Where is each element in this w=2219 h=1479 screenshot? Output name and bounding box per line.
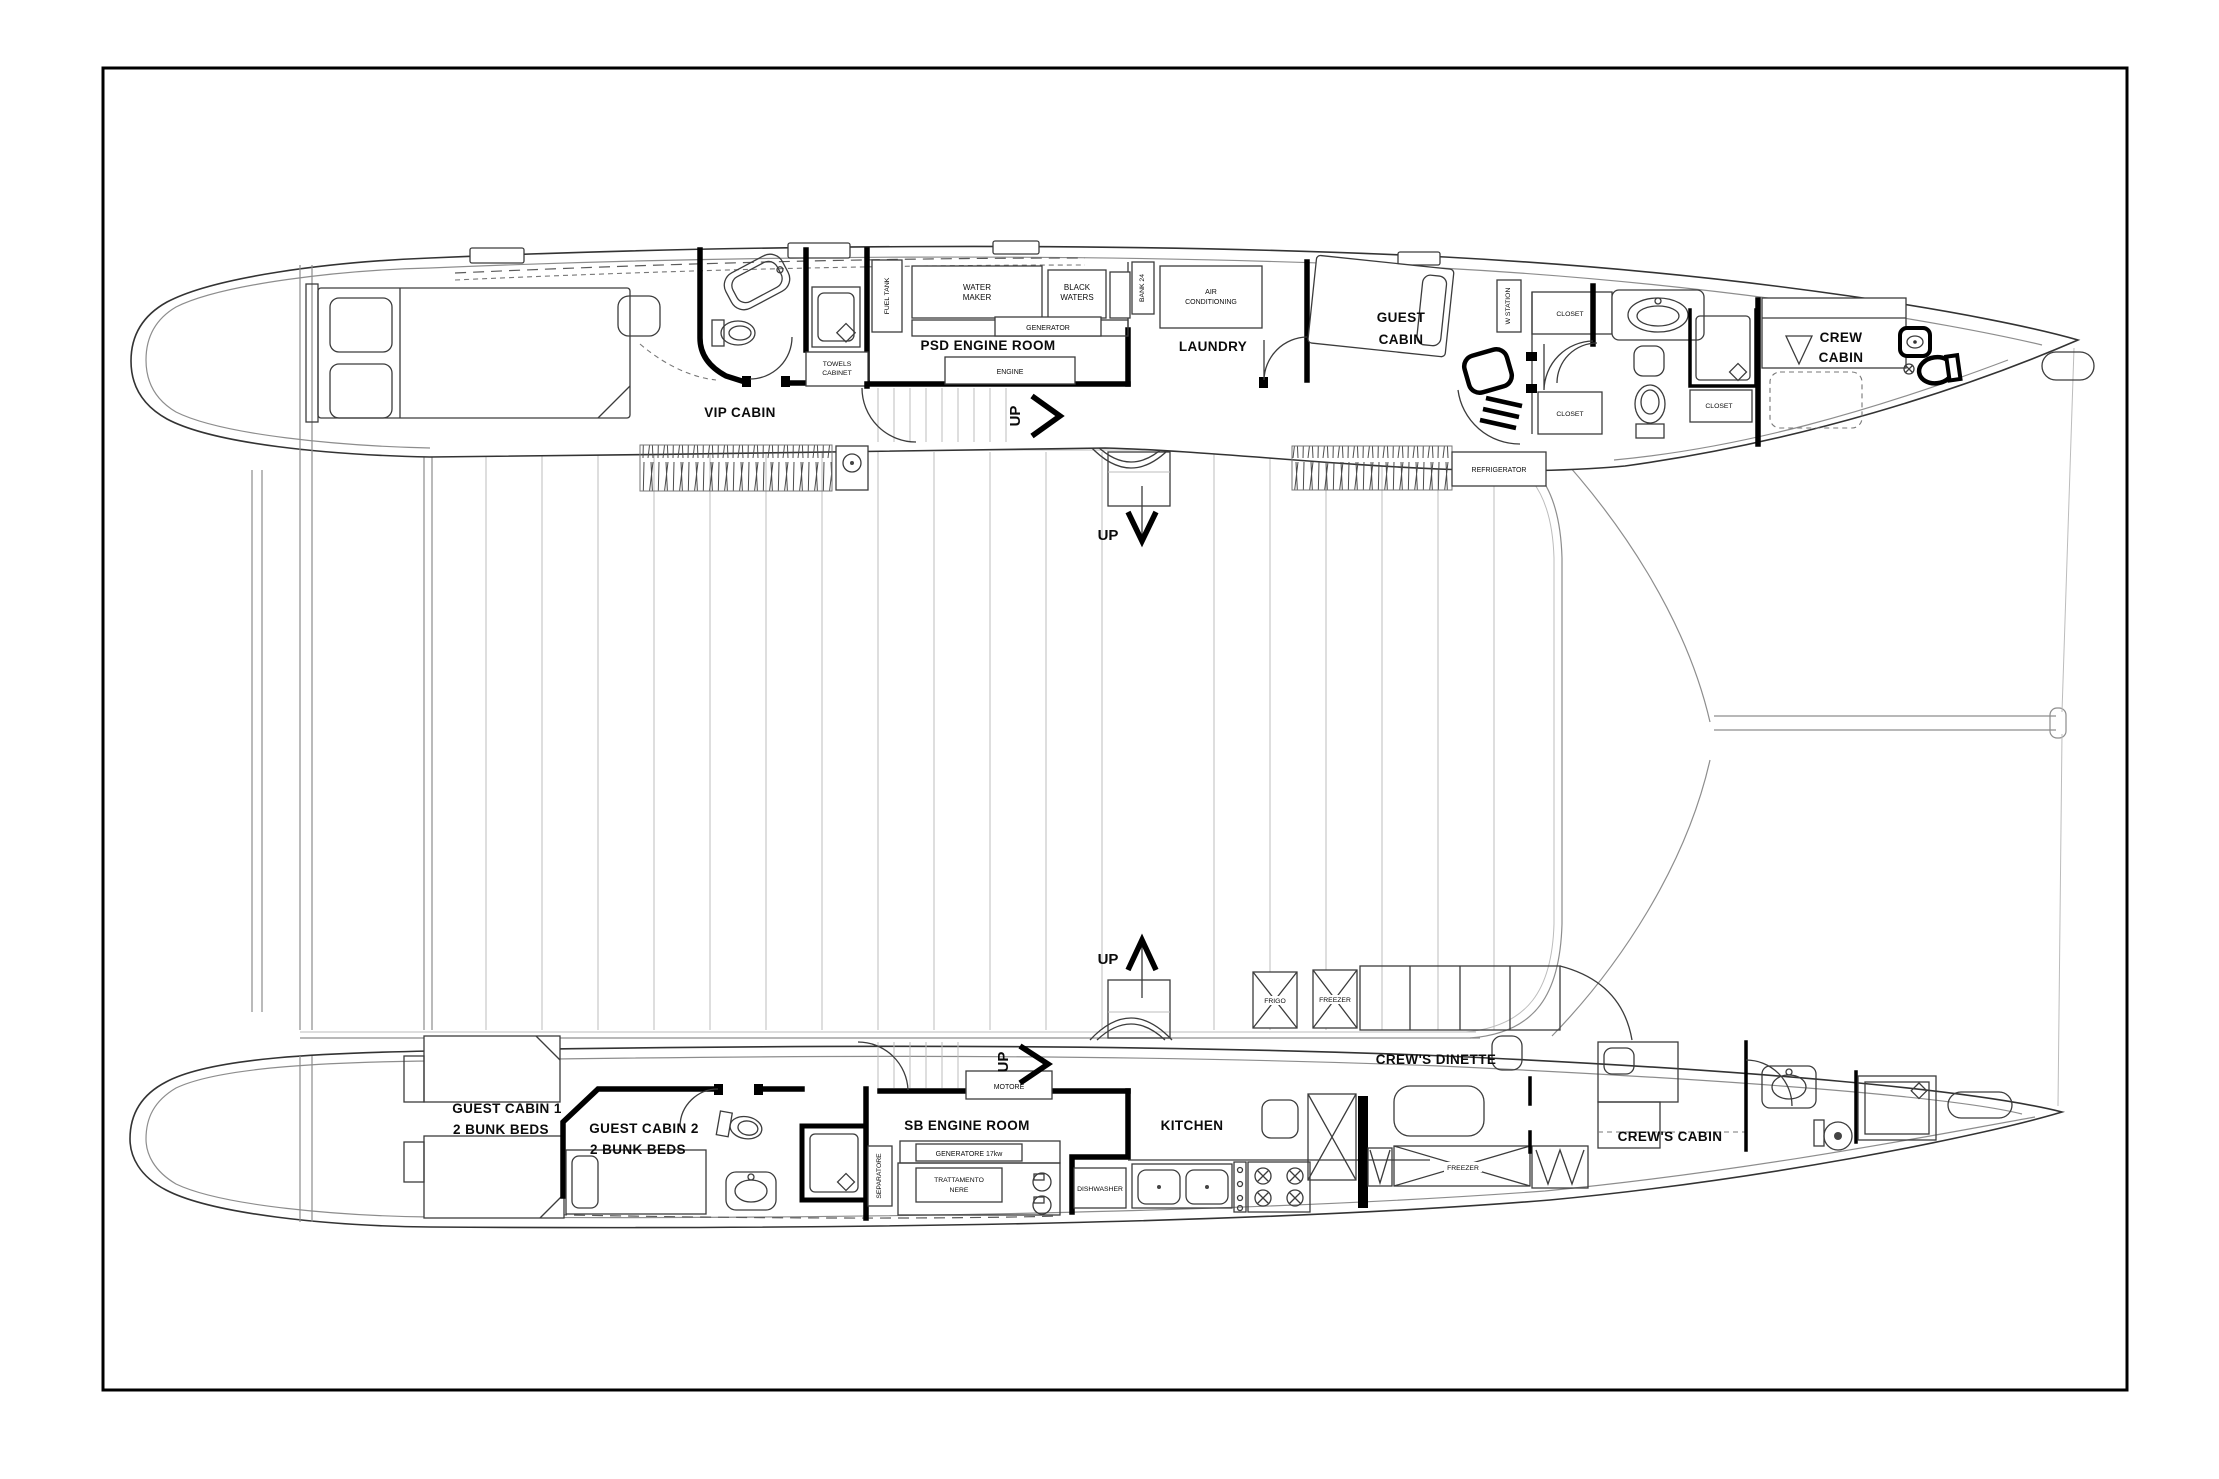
bunk-bed-lower [424, 1136, 564, 1218]
freezer-box-upper: FREEZER [1313, 970, 1357, 1028]
bunk-bed-upper [424, 1036, 560, 1102]
label-closet: CLOSET [1556, 411, 1583, 418]
label-nere: NERE [950, 1187, 969, 1194]
black-waters-tank: BLACK WATERS [1048, 270, 1106, 318]
floor-plan-canvas: UP UP [0, 0, 2219, 1479]
up-label: UP [995, 1052, 1012, 1073]
motore-unit: MOTORE [966, 1071, 1052, 1099]
trattamento-unit: TRATTAMENTO NERE [916, 1168, 1002, 1202]
label-kitchen: KITCHEN [1161, 1118, 1224, 1133]
up-label: UP [1098, 951, 1119, 968]
label-generator: GENERATOR [1026, 325, 1070, 332]
up-label: UP [1098, 527, 1119, 544]
shower [802, 1126, 866, 1200]
label-guest: GUEST [1377, 310, 1426, 325]
label-engine: ENGINE [997, 369, 1024, 376]
label-freezer: FREEZER [1319, 997, 1351, 1004]
vip-bed [318, 288, 630, 418]
label-generatore: GENERATORE 17kw [936, 1151, 1004, 1158]
label-black: BLACK [1064, 283, 1091, 292]
engine-unit: ENGINE [945, 357, 1075, 384]
label-psd-engine-room: PSD ENGINE ROOM [920, 338, 1055, 353]
label-water: WATER [963, 283, 991, 292]
hull-wardrobe [1292, 446, 1452, 490]
water-maker: WATER MAKER [912, 266, 1042, 318]
label-refrigerator: REFRIGERATOR [1472, 467, 1527, 474]
up-label: UP [1007, 406, 1024, 427]
label-freezer: FREEZER [1447, 1165, 1479, 1172]
w-station-box: W STATION [1497, 280, 1521, 332]
closet-1: CLOSET [1532, 292, 1612, 334]
bed [566, 1150, 706, 1214]
label-towels: TOWELS [823, 361, 852, 368]
towels-cabinet: TOWELS CABINET [806, 352, 868, 386]
closet-2: CLOSET [1538, 392, 1602, 434]
label-closet: CLOSET [1705, 403, 1732, 410]
label-2-bunk-beds: 2 BUNK BEDS [453, 1122, 549, 1137]
dishwasher: DISHWASHER [1074, 1168, 1126, 1208]
label-frigo: FRIGO [1264, 998, 1286, 1005]
frigo-box: FRIGO [1253, 972, 1297, 1028]
label-w-station: W STATION [1505, 288, 1512, 325]
label-fuel-tank: FUEL TANK [884, 277, 891, 314]
refrigerator-box: REFRIGERATOR [1452, 452, 1546, 486]
separatore-box: SEPARATORE [868, 1146, 892, 1206]
closet-3: CLOSET [1690, 390, 1752, 422]
label-trattamento: TRATTAMENTO [934, 1177, 984, 1184]
label-maker: MAKER [963, 293, 992, 302]
label-closet: CLOSET [1556, 311, 1583, 318]
label-vip-cabin: VIP CABIN [704, 405, 776, 420]
label-separatore: SEPARATORE [876, 1153, 883, 1199]
label-cabin: CABIN [1819, 350, 1864, 365]
label-cabinet: CABINET [822, 370, 851, 377]
label-conditioning: CONDITIONING [1185, 299, 1237, 306]
label-guest-cabin-1: GUEST CABIN 1 [452, 1101, 562, 1116]
label-waters: WATERS [1060, 293, 1093, 302]
label-cabin: CABIN [1379, 332, 1424, 347]
label-dishwasher: DISHWASHER [1077, 1186, 1123, 1193]
label-crews-dinette: CREW'S DINETTE [1376, 1052, 1497, 1067]
vip-wardrobe [640, 445, 832, 491]
air-conditioning-unit: AIR CONDITIONING [1160, 266, 1262, 328]
crew-sink [1900, 328, 1930, 356]
fuel-tank: FUEL TANK [872, 260, 902, 332]
label-crew: CREW [1820, 330, 1863, 345]
vip-vanity [836, 446, 868, 490]
label-guest-cabin-2: GUEST CABIN 2 [589, 1121, 698, 1136]
label-air: AIR [1205, 289, 1217, 296]
label-motore: MOTORE [994, 1084, 1025, 1091]
label-crews-cabin: CREW'S CABIN [1618, 1129, 1723, 1144]
label-bank-24: BANK 24 [1139, 274, 1146, 302]
label-laundry: LAUNDRY [1179, 339, 1247, 354]
label-2-bunk-beds: 2 BUNK BEDS [590, 1142, 686, 1157]
bank-24-box: BANK 24 [1132, 262, 1154, 314]
label-sb-engine-room: SB ENGINE ROOM [904, 1118, 1030, 1133]
